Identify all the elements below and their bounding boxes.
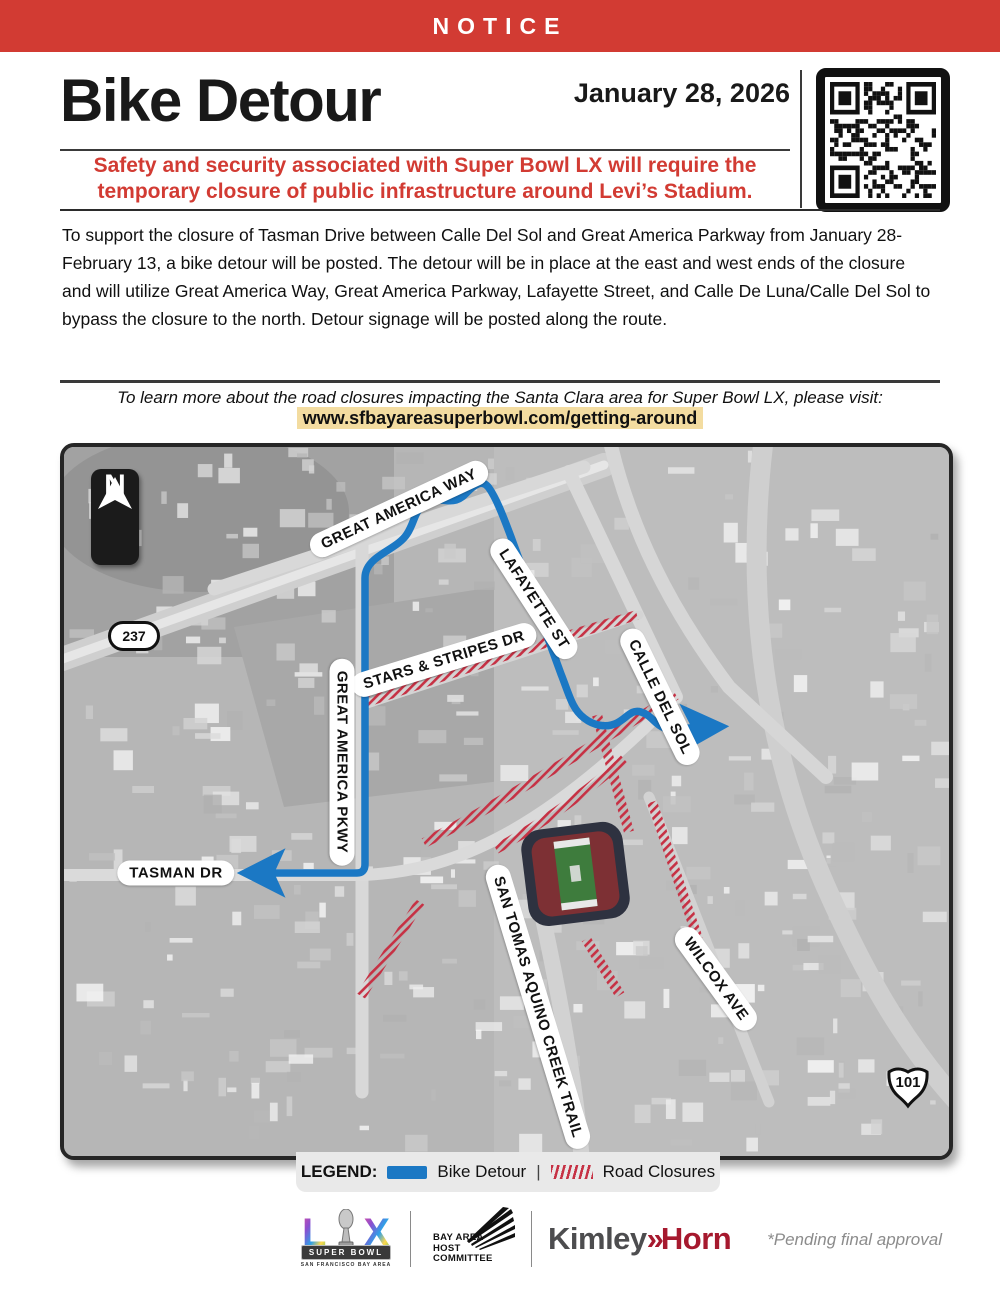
notice-date: January 28, 2026 (480, 78, 790, 109)
footer-divider (410, 1211, 411, 1267)
north-arrow-icon (91, 469, 139, 519)
levis-stadium (519, 820, 632, 929)
learn-more-text: To learn more about the road closures im… (60, 388, 940, 408)
notice-page: NOTICE Bike Detour January 28, 2026 Safe… (0, 0, 1000, 1294)
legend-bike-detour-label: Bike Detour (437, 1162, 526, 1182)
route-shield-237: 237 (108, 621, 160, 651)
legend-bar: LEGEND: Bike Detour | Road Closures (296, 1152, 720, 1192)
alert-text: Safety and security associated with Supe… (60, 153, 790, 205)
getting-around-link[interactable]: www.sfbayareasuperbowl.com/getting-aroun… (297, 407, 703, 429)
legend-separator: | (536, 1162, 540, 1182)
divider-rule-thick (60, 380, 940, 383)
header-vertical-divider (800, 70, 802, 208)
north-arrow: N (91, 469, 139, 565)
kimley-horn-logo: Kimley»Horn (548, 1221, 731, 1257)
notice-banner: NOTICE (0, 0, 1000, 52)
road-closures-swatch (551, 1165, 593, 1179)
bahc-line-1: BAY AREA (433, 1233, 493, 1244)
route-shield-101: 101 (884, 1065, 932, 1109)
title-rule (60, 149, 790, 151)
detour-map: GREAT AMERICA WAYLAFAYETTE STSTARS & STR… (60, 443, 953, 1160)
qr-code (816, 68, 950, 212)
kh-word-horn: Horn (661, 1221, 731, 1256)
bay-area-host-committee-logo: BAY AREA HOST COMMITTEE (427, 1207, 515, 1271)
notice-banner-label: NOTICE (433, 13, 568, 40)
alert-line-2: temporary closure of public infrastructu… (97, 180, 752, 203)
legend-road-closures-label: Road Closures (603, 1162, 715, 1182)
sb-subtext: SAN FRANCISCO BAY AREA (301, 1262, 391, 1268)
kh-chevrons: » (647, 1221, 661, 1256)
pending-approval-note: *Pending final approval (767, 1230, 942, 1250)
bike-detour-swatch (387, 1166, 427, 1179)
page-title: Bike Detour (60, 66, 380, 135)
legend-title: LEGEND: (301, 1162, 378, 1182)
footer-logos: L X SUPER BOWL SAN FRANCISCO BAY AREA (298, 1207, 731, 1271)
map-graphics (64, 447, 949, 1156)
kh-word-kimley: Kimley (548, 1221, 647, 1256)
divider-rule (60, 209, 940, 211)
super-bowl-logo: L X SUPER BOWL SAN FRANCISCO BAY AREA (298, 1211, 394, 1268)
sb-banner-text: SUPER BOWL (301, 1245, 391, 1260)
footer-divider (531, 1211, 532, 1267)
url-line: www.sfbayareasuperbowl.com/getting-aroun… (60, 408, 940, 429)
alert-line-1: Safety and security associated with Supe… (94, 154, 757, 177)
bahc-line-3: COMMITTEE (433, 1254, 493, 1265)
body-paragraph: To support the closure of Tasman Drive b… (62, 221, 938, 333)
